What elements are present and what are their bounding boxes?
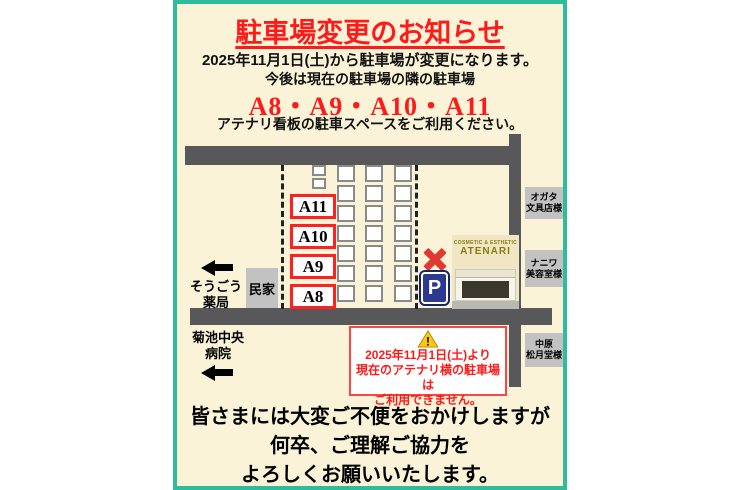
shop-line2: 文具店様 <box>526 203 562 214</box>
warning-line3: ご利用できません。 <box>351 393 505 408</box>
shop-box-naniwa: ナニワ 美容室様 <box>525 250 563 287</box>
warning-triangle-icon: ! <box>417 330 439 348</box>
shop-line2: 松月堂様 <box>526 350 562 361</box>
hospital-line2: 病院 <box>205 346 231 361</box>
parking-space <box>312 178 326 189</box>
parking-boundary-dashed-right <box>415 165 418 309</box>
parking-space <box>337 225 355 242</box>
parking-space <box>365 225 383 242</box>
hospital-line1: 菊池中央 <box>192 330 244 345</box>
parking-space <box>394 285 412 302</box>
notice-title: 駐車場変更のお知らせ <box>177 11 563 50</box>
parking-space <box>337 245 355 262</box>
shop-line2: 美容室様 <box>526 269 562 280</box>
parking-space <box>394 205 412 222</box>
shop-line1: オガタ <box>530 192 557 203</box>
warning-box: ! 2025年11月1日(土)より 現在のアテナリ横の駐車場は ご利用できません… <box>349 326 507 396</box>
footer-line2: 何卒、ご理解ご協力を <box>177 432 563 461</box>
parking-sign-icon: P <box>421 272 448 304</box>
parking-space <box>394 265 412 282</box>
x-mark-icon <box>423 247 447 271</box>
building-sign-name: ATENARI <box>452 246 519 257</box>
shop-box-nakahara: 中原 松月堂様 <box>525 333 563 367</box>
parking-space <box>394 225 412 242</box>
parking-space <box>365 165 383 182</box>
footer-message: 皆さまには大変ご不便をおかけしますが 何卒、ご理解ご協力を よろしくお願いいたし… <box>177 403 563 490</box>
road-top <box>185 146 520 165</box>
parking-space <box>394 165 412 182</box>
parking-notice-flyer: 駐車場変更のお知らせ 2025年11月1日(土)から駐車場が変更になります。 今… <box>173 0 567 490</box>
pharmacy-label: そうごう 薬局 <box>183 279 249 311</box>
parking-space <box>337 165 355 182</box>
parking-space <box>337 285 355 302</box>
atenari-building-photo: COSMETIC & ESTHETIC ATENARI <box>452 235 519 309</box>
parking-space <box>365 245 383 262</box>
parking-space-label-a11: A11 <box>290 194 336 219</box>
pharmacy-line2: 薬局 <box>203 295 229 310</box>
page: 駐車場変更のお知らせ 2025年11月1日(土)から駐車場が変更になります。 今… <box>0 0 740 490</box>
shop-line1: 中原 <box>535 339 553 350</box>
shop-line1: ナニワ <box>530 258 557 269</box>
footer-line3: よろしくお願いいたします。 <box>177 461 563 490</box>
parking-space <box>365 265 383 282</box>
parking-space <box>365 205 383 222</box>
parking-column <box>337 165 355 305</box>
parking-space <box>337 265 355 282</box>
svg-text:!: ! <box>426 335 430 348</box>
notice-instruction-line: アテナリ看板の駐車スペースをご利用ください。 <box>177 114 563 134</box>
parking-space <box>394 245 412 262</box>
warning-line1: 2025年11月1日(土)より <box>351 348 505 363</box>
parking-space <box>365 285 383 302</box>
parking-column <box>394 165 412 305</box>
pharmacy-line1: そうごう <box>190 279 242 294</box>
parking-space-label-a8: A8 <box>290 284 336 309</box>
hospital-label: 菊池中央 病院 <box>185 330 251 362</box>
parking-space <box>337 205 355 222</box>
parking-boundary-dashed-left <box>281 165 284 309</box>
house-box: 民家 <box>246 268 278 308</box>
warning-line2: 現在のアテナリ横の駐車場は <box>351 363 505 393</box>
left-arrow-icon <box>201 364 233 381</box>
parking-space <box>337 185 355 202</box>
parking-space-label-a9: A9 <box>290 254 336 279</box>
parking-space <box>394 185 412 202</box>
parking-space <box>312 165 326 176</box>
shop-box-ogata: オガタ 文具店様 <box>525 187 563 219</box>
notice-date-line: 2025年11月1日(土)から駐車場が変更になります。 <box>177 49 563 70</box>
parking-column-small <box>312 165 326 191</box>
parking-column <box>365 165 383 305</box>
parking-space <box>365 185 383 202</box>
left-arrow-icon <box>201 259 233 276</box>
parking-space-label-a10: A10 <box>290 224 336 249</box>
building-storefront <box>455 269 516 301</box>
